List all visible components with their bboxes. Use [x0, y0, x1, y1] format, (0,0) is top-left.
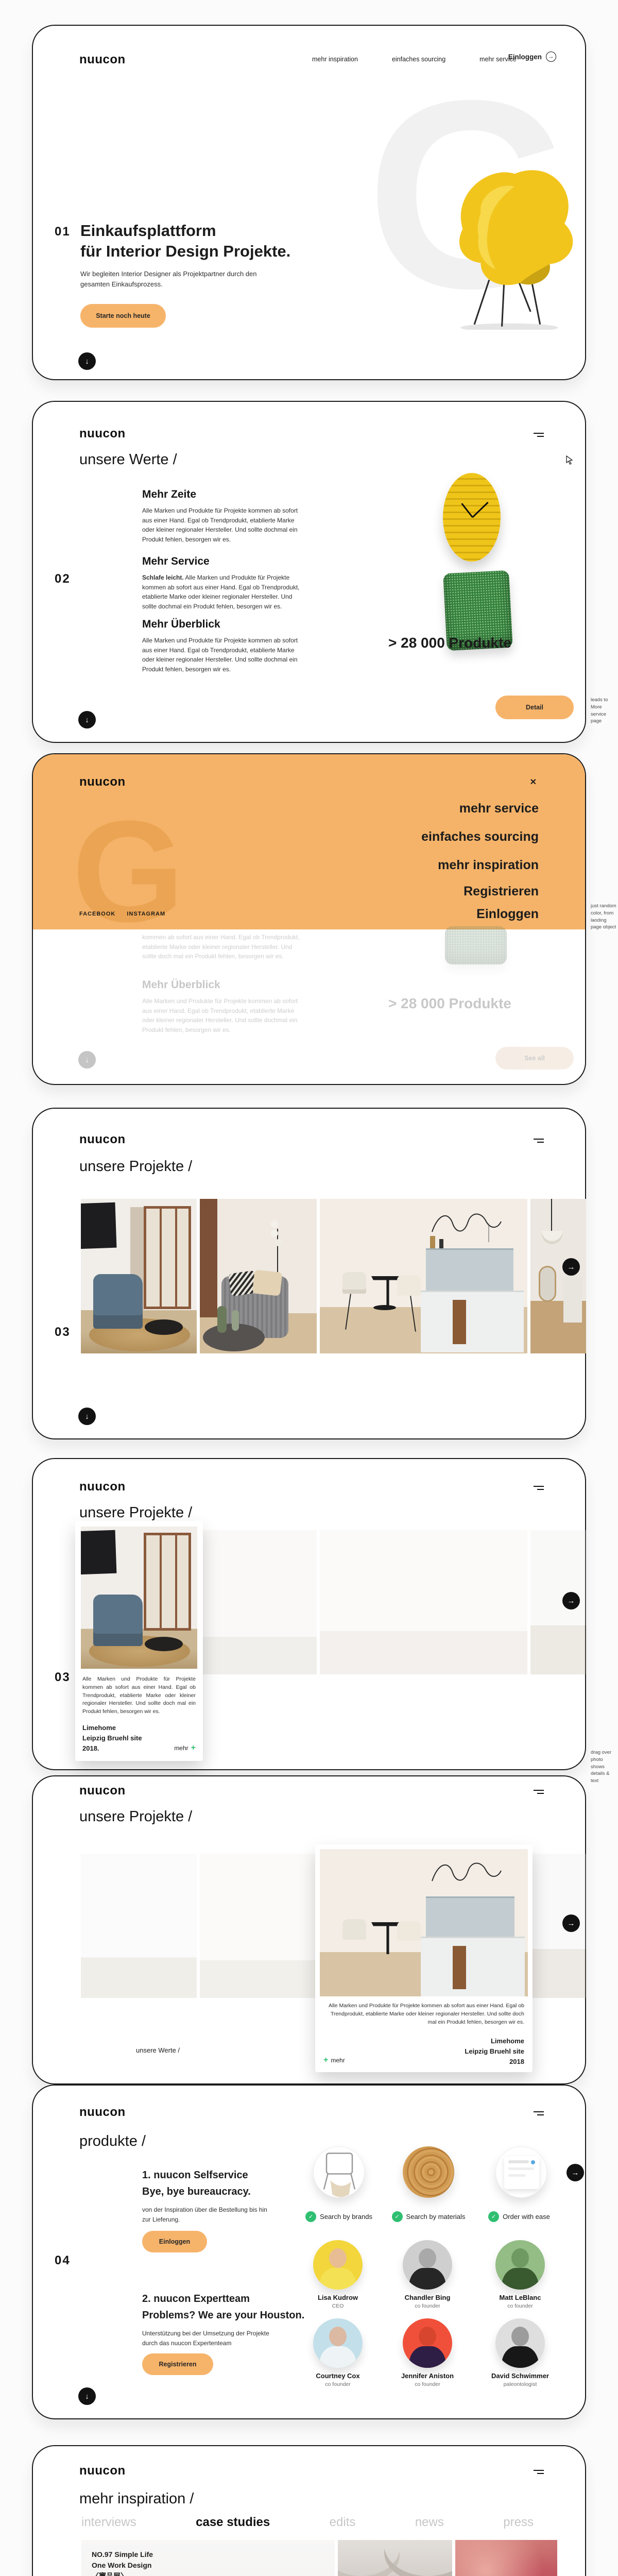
frame-menu-overlay: G nuucon ✕ mehr service einfaches sourci…: [32, 753, 586, 1085]
mehr-label: mehr: [174, 1744, 188, 1752]
avatar-matt-leblanc: [495, 2240, 545, 2290]
clock-image: [443, 473, 501, 562]
carousel-next-button[interactable]: →: [562, 1592, 580, 1609]
mehr-link[interactable]: + mehr: [323, 2056, 345, 2065]
menu-button[interactable]: [534, 2468, 544, 2474]
facebook-link[interactable]: FACEBOOK: [79, 911, 115, 917]
hero-title-line2: für Interior Design Projekte.: [80, 241, 317, 262]
product-count: > 28 000 Produkte: [388, 635, 511, 651]
project-year: 2018.: [82, 1743, 142, 1754]
dim-see-all-button: See all: [495, 1047, 574, 1070]
registrieren-button[interactable]: Registrieren: [142, 2353, 213, 2375]
cta-button[interactable]: Starte noch heute: [80, 304, 166, 328]
section-heading: unsere Werte /: [79, 451, 177, 468]
nuucon-logo: nuucon: [79, 53, 126, 67]
project-photo-livingroom[interactable]: [81, 1199, 197, 1353]
team-role: CEO: [299, 2303, 376, 2309]
expertteam-body: Unterstützung bei der Umsetzung der Proj…: [142, 2329, 281, 2348]
expertteam-title-line1: 2. nuucon Expertteam: [142, 2291, 304, 2307]
selfservice-title: 1. nuucon Selfservice Bye, bye bureaucra…: [142, 2167, 251, 2200]
project-caption-meta: Limehome Leipzig Bruehl site 2018: [465, 2036, 524, 2067]
value-lead-2: Schlafe leicht.: [142, 574, 184, 581]
team-name: Courtney Cox: [299, 2372, 376, 2380]
team-role: co founder: [299, 2381, 376, 2387]
feature-label: Search by materials: [406, 2213, 466, 2221]
feature-materials: ✓Search by materials: [383, 2211, 474, 2222]
project-photo-lounge[interactable]: [200, 1530, 317, 1674]
avatar-jennifer-aniston: [403, 2318, 452, 2368]
team-role: paleontologist: [482, 2381, 559, 2387]
section-number: 04: [55, 2253, 71, 2268]
project-photo-livingroom: [81, 1527, 197, 1669]
expertteam-title: 2. nuucon Expertteam Problems? We are yo…: [142, 2291, 304, 2324]
menu-item-einfaches-sourcing[interactable]: einfaches sourcing: [421, 823, 539, 851]
yellow-chair-image: [430, 149, 586, 330]
team-role: co founder: [389, 2381, 466, 2387]
project-photo-kitchen[interactable]: [320, 1199, 527, 1353]
frame-projekte-1: nuucon unsere Projekte /: [32, 1108, 586, 1439]
section-heading: unsere Projekte /: [79, 1808, 192, 1825]
avatar-chandler-bing: [403, 2240, 452, 2290]
nuucon-logo: nuucon: [79, 2105, 126, 2120]
design-presentation-page: nuucon mehr inspiration einfaches sourci…: [0, 0, 618, 2576]
value-body-1: Alle Marken und Produkte für Projekte ko…: [142, 506, 302, 544]
case-photo-interior[interactable]: [338, 2540, 452, 2576]
register-link[interactable]: Registrieren: [463, 884, 539, 899]
plus-icon: +: [323, 2056, 328, 2065]
frame-hero: nuucon mehr inspiration einfaches sourci…: [32, 25, 586, 380]
tab-case-studies[interactable]: case studies: [196, 2515, 270, 2530]
team-role: co founder: [482, 2303, 559, 2309]
tab-edits[interactable]: edits: [330, 2515, 356, 2530]
avatar-lisa-kudrow: [313, 2240, 363, 2290]
project-photo-lounge[interactable]: [200, 1199, 317, 1353]
avatar-david-schwimmer: [495, 2318, 545, 2368]
tab-press[interactable]: press: [503, 2515, 534, 2530]
nav-mehr-inspiration[interactable]: mehr inspiration: [312, 56, 358, 63]
project-photo-lounge[interactable]: [200, 1854, 317, 1998]
project-name: Limehome: [82, 1723, 142, 1733]
team-name: Matt LeBlanc: [482, 2294, 559, 2301]
hero-subtitle: Wir begleiten Interior Designer als Proj…: [80, 269, 261, 290]
tab-news[interactable]: news: [415, 2515, 444, 2530]
instagram-link[interactable]: INSTAGRAM: [127, 911, 165, 917]
case-photo-red-texture[interactable]: [455, 2540, 557, 2576]
carousel-next-button[interactable]: →: [562, 1914, 580, 1932]
selfservice-title-line2: Bye, bye bureaucracy.: [142, 2183, 251, 2200]
section-heading: mehr inspiration /: [79, 2490, 194, 2507]
nuucon-logo: nuucon: [79, 1132, 126, 1147]
project-site: Leipzig Bruehl site: [465, 2046, 524, 2057]
project-year: 2018: [465, 2057, 524, 2067]
section-heading: produkte /: [79, 2133, 146, 2150]
cursor-icon: [565, 455, 574, 465]
project-photo-livingroom[interactable]: [81, 1854, 197, 1998]
menu-overlay-panel: G nuucon ✕ mehr service einfaches sourci…: [33, 754, 585, 929]
feature-order: ✓Order with ease: [474, 2211, 564, 2222]
dim-value-title: Mehr Überblick: [142, 979, 220, 991]
feature-label: Order with ease: [503, 2213, 550, 2221]
menu-button[interactable]: [534, 2109, 544, 2115]
project-caption-body: Alle Marken und Produkte für Projekte ko…: [82, 1675, 196, 1716]
project-photo-hallway[interactable]: [530, 1199, 586, 1353]
scroll-down-button[interactable]: ↓: [78, 1408, 96, 1425]
nuucon-logo: nuucon: [79, 2464, 126, 2478]
menu-item-mehr-service[interactable]: mehr service: [421, 794, 539, 823]
einloggen-button[interactable]: Einloggen: [142, 2231, 207, 2252]
case-title-line1: NO.97 Simple Life: [92, 2549, 153, 2560]
login-link[interactable]: Einloggen: [476, 907, 539, 922]
project-photo-kitchen[interactable]: [320, 1530, 527, 1674]
inspiration-tabs: interviews case studies edits news press: [81, 2515, 534, 2530]
value-title-2: Mehr Service: [142, 555, 210, 568]
menu-button[interactable]: [534, 1484, 544, 1490]
check-icon: ✓: [392, 2211, 403, 2222]
project-photo-kitchen: [320, 1849, 528, 1996]
project-hover-card[interactable]: Alle Marken und Produkte für Projekte ko…: [75, 1521, 203, 1761]
frame-projekte-3: nuucon unsere Projekte / Alle Marken und…: [32, 1775, 586, 2084]
value-body-2: Schlafe leicht. Alle Marken und Produkte…: [142, 573, 307, 611]
case-title-line2: One Work Design: [92, 2560, 153, 2571]
section-heading: unsere Projekte /: [79, 1504, 192, 1521]
dim-product-count: > 28 000 Produkte: [388, 995, 511, 1012]
team-role: co founder: [389, 2303, 466, 2309]
hero-title: Einkaufsplattform für Interior Design Pr…: [80, 221, 317, 262]
project-site: Leipzig Bruehl site: [82, 1733, 142, 1743]
brands-chair-image: [313, 2146, 365, 2198]
hero-title-line1: Einkaufsplattform: [80, 221, 317, 241]
materials-wood-image: [403, 2146, 454, 2198]
menu-button[interactable]: [534, 1137, 544, 1143]
project-caption-meta: Limehome Leipzig Bruehl site 2018.: [82, 1723, 142, 1754]
nuucon-logo: nuucon: [79, 775, 126, 789]
project-name: Limehome: [465, 2036, 524, 2046]
selfservice-title-line1: 1. nuucon Selfservice: [142, 2167, 251, 2183]
dimmed-page-underlay: kommen ab sofort aus einer Hand. Egal ob…: [33, 929, 585, 1084]
team-name: David Schwimmer: [482, 2372, 559, 2380]
tab-interviews[interactable]: interviews: [81, 2515, 136, 2530]
detail-button[interactable]: Detail: [495, 696, 574, 719]
value-body-3: Alle Marken und Produkte für Projekte ko…: [142, 636, 302, 674]
menu-button[interactable]: [534, 1788, 544, 1794]
frame-inspiration: nuucon mehr inspiration / interviews cas…: [32, 2445, 586, 2576]
case-card-simple-life[interactable]: NO.97 Simple Life One Work Design 〈寶品屋〉 …: [81, 2540, 335, 2576]
section-number: 03: [55, 1325, 71, 1340]
team-name: Lisa Kudrow: [299, 2294, 376, 2301]
dim-value-body: Alle Marken und Produkte für Projekte ko…: [142, 996, 302, 1035]
frame-werte: nuucon unsere Werte / Mehr Zeite Alle Ma…: [32, 401, 586, 743]
nuucon-logo: nuucon: [79, 1784, 126, 1798]
expertteam-title-line2: Problems? We are your Houston.: [142, 2307, 304, 2324]
mehr-link[interactable]: mehr +: [174, 1743, 196, 1753]
scroll-down-button[interactable]: ↓: [78, 352, 96, 370]
case-title: NO.97 Simple Life One Work Design 〈寶品屋〉: [92, 2549, 153, 2576]
section-heading: unsere Projekte /: [79, 1158, 192, 1175]
project-caption-body: Alle Marken und Produkte für Projekte ko…: [323, 2002, 524, 2026]
annotation-menu-color: just random color, from landing page obj…: [591, 903, 616, 931]
menu-item-mehr-inspiration[interactable]: mehr inspiration: [421, 851, 539, 879]
werte-link[interactable]: unsere Werte /: [136, 2046, 180, 2054]
feature-label: Search by brands: [320, 2213, 372, 2221]
dim-scroll-down-button: ↓: [78, 1051, 96, 1069]
order-ui-image: [495, 2146, 547, 2198]
nuucon-logo: nuucon: [79, 1480, 126, 1494]
scroll-down-button[interactable]: ↓: [78, 711, 96, 728]
annotation-photo-hover: drag over photo shows details & text: [591, 1749, 616, 1785]
selfservice-body: von der Inspiration über die Bestellung …: [142, 2205, 276, 2224]
frame-projekte-2: nuucon unsere Projekte / Alle Marken und…: [32, 1458, 586, 1770]
annotation-detail-button: leads to More service page: [591, 697, 616, 725]
carousel-next-button[interactable]: →: [562, 1258, 580, 1276]
check-icon: ✓: [305, 2211, 316, 2222]
team-name: Jennifer Aniston: [389, 2372, 466, 2380]
nuucon-logo: nuucon: [79, 427, 126, 441]
dim-pillow-image: [445, 926, 507, 964]
social-links: FACEBOOK INSTAGRAM: [79, 911, 165, 917]
value-title-3: Mehr Überblick: [142, 618, 220, 631]
dim-text-fragment: kommen ab sofort aus einer Hand. Egal ob…: [142, 933, 307, 961]
case-title-line3: 〈寶品屋〉: [92, 2571, 153, 2576]
frame-produkte: nuucon produkte / 1. nuucon Selfservice …: [32, 2084, 586, 2419]
carousel-next-button[interactable]: →: [566, 2164, 584, 2181]
section-number: 03: [55, 1670, 71, 1685]
check-icon: ✓: [488, 2211, 499, 2222]
overlay-menu: mehr service einfaches sourcing mehr ins…: [421, 794, 539, 879]
menu-button[interactable]: [534, 431, 544, 437]
feature-brands: ✓Search by brands: [294, 2211, 384, 2222]
value-title-1: Mehr Zeite: [142, 488, 196, 501]
avatar-courtney-cox: [313, 2318, 363, 2368]
plus-icon: +: [191, 1743, 196, 1753]
close-icon[interactable]: ✕: [530, 777, 537, 787]
project-hover-card[interactable]: Alle Marken und Produkte für Projekte ko…: [315, 1844, 533, 2072]
team-name: Chandler Bing: [389, 2294, 466, 2301]
mehr-label: mehr: [331, 2057, 345, 2064]
section-number: 01: [55, 225, 71, 239]
section-number: 02: [55, 572, 71, 586]
scroll-down-button[interactable]: ↓: [78, 2387, 96, 2405]
